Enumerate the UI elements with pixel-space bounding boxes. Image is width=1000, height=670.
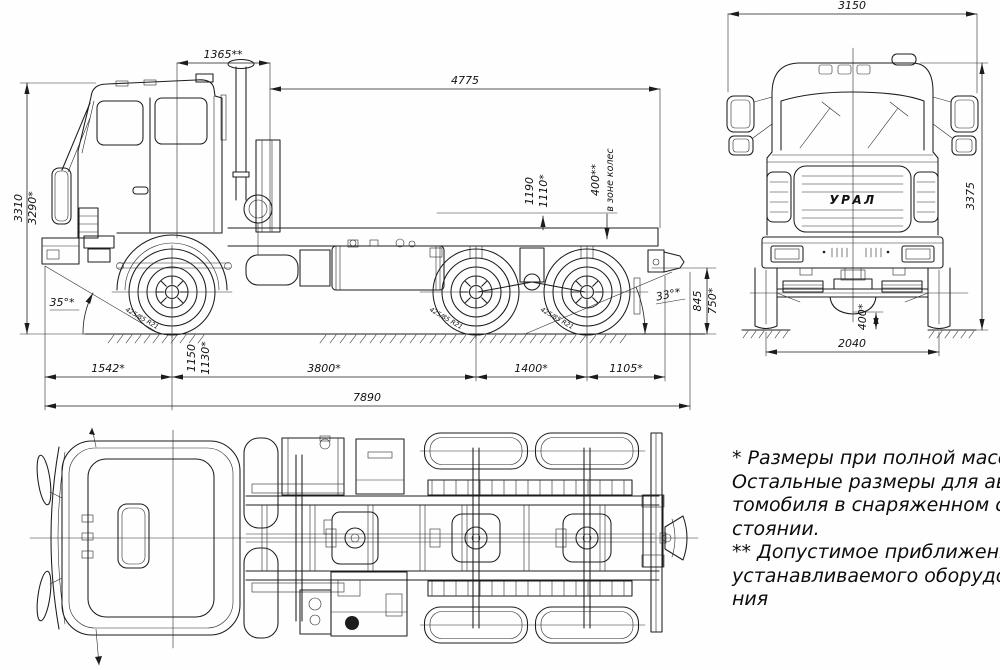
side-frame	[228, 228, 684, 314]
dim-track: 2040	[766, 332, 939, 356]
label-total-length: 7890	[353, 391, 381, 404]
front-bumper	[762, 237, 943, 275]
side-mirror	[52, 103, 90, 224]
headlamp-right	[914, 172, 938, 222]
label-height-front: 3375	[964, 182, 977, 210]
label-rear-overhang: 1105*	[609, 362, 643, 375]
blueprint-canvas: 425/85 R21 425/85 R21 425/85 R21 3310 32…	[0, 0, 1000, 670]
note-line: Остальные размеры для ав-	[732, 471, 996, 495]
label-frame-h1: 1190	[523, 177, 536, 205]
front-wheels	[755, 268, 950, 329]
front-cab	[767, 54, 938, 235]
label-bogie-base: 1400*	[514, 362, 548, 375]
label-front-overhang: 1542*	[91, 362, 125, 375]
note-line: стоянии.	[732, 518, 996, 542]
note-line: устанавливаемого оборудова-	[732, 565, 996, 589]
label-height-max: 3310	[12, 194, 25, 222]
dim-frame-length: 4775	[270, 74, 660, 228]
label-frame-h2: 1110*	[537, 174, 550, 208]
side-muffler	[246, 255, 298, 285]
dim-overall-width: 3150	[728, 0, 977, 93]
label-track: 2040	[838, 337, 866, 350]
label-cab-gap: 1365**	[204, 48, 243, 61]
label-axle-h2: 1130*	[199, 341, 212, 375]
front-view: УРАЛ	[727, 0, 988, 356]
side-view: 425/85 R21 425/85 R21 425/85 R21 3310 32…	[12, 48, 719, 410]
label-wheelbase: 3800*	[307, 362, 341, 375]
notes-block: * Размеры при полной массе. Остальные ра…	[732, 447, 996, 612]
label-clearance: 400*	[856, 303, 869, 330]
windshield	[781, 92, 924, 150]
wipers	[800, 102, 908, 148]
top-roof-hatch	[118, 504, 149, 568]
front-mirror-right	[933, 96, 978, 155]
label-wheel-zone-text: в зоне колес	[605, 148, 616, 212]
label-width: 3150	[838, 0, 866, 12]
note-line: * Размеры при полной массе.	[732, 447, 996, 471]
headlamp-left	[767, 172, 791, 222]
label-rear-h2: 750*	[706, 287, 719, 314]
dim-approach-angle: 35°*	[45, 266, 160, 334]
dim-length-chain: 1542* 3800* 1400* 1105* 7890 1150 1130*	[45, 266, 690, 410]
front-mirror-left	[727, 96, 772, 155]
bogie-suspension	[470, 246, 593, 292]
side-battery-box	[300, 250, 330, 286]
label-wheel-zone-dim: 400**	[589, 164, 602, 196]
ural-logo: УРАЛ	[829, 193, 876, 207]
top-fuel-tank	[282, 436, 344, 495]
side-ground	[85, 334, 705, 343]
label-angle-front: 35°*	[50, 296, 75, 309]
label-rear-h1: 845	[691, 291, 704, 312]
dim-departure-angle: 33°*	[525, 272, 685, 334]
front-grille: УРАЛ	[767, 166, 938, 232]
top-view	[30, 428, 698, 665]
label-axle-h1: 1150	[185, 344, 198, 372]
note-line: ния	[732, 588, 996, 612]
note-line: томобиля в снаряженном со-	[732, 494, 996, 518]
note-line: ** Допустимое приближение	[732, 541, 996, 565]
top-cab	[51, 428, 240, 665]
label-frame-length: 4775	[451, 74, 479, 87]
top-equipment-box	[331, 572, 407, 636]
dim-ground-clearance: 400*	[853, 303, 883, 330]
label-angle-rear: 33°*	[655, 286, 683, 304]
side-cab	[42, 74, 232, 290]
top-battery-box	[300, 590, 331, 634]
side-fuel-tank	[332, 239, 444, 290]
top-toolbox	[356, 439, 404, 494]
dim-wheel-zone: 400** в зоне колес	[589, 148, 616, 239]
top-rear-crossmember	[642, 433, 664, 632]
label-height-loaded: 3290*	[26, 191, 39, 225]
